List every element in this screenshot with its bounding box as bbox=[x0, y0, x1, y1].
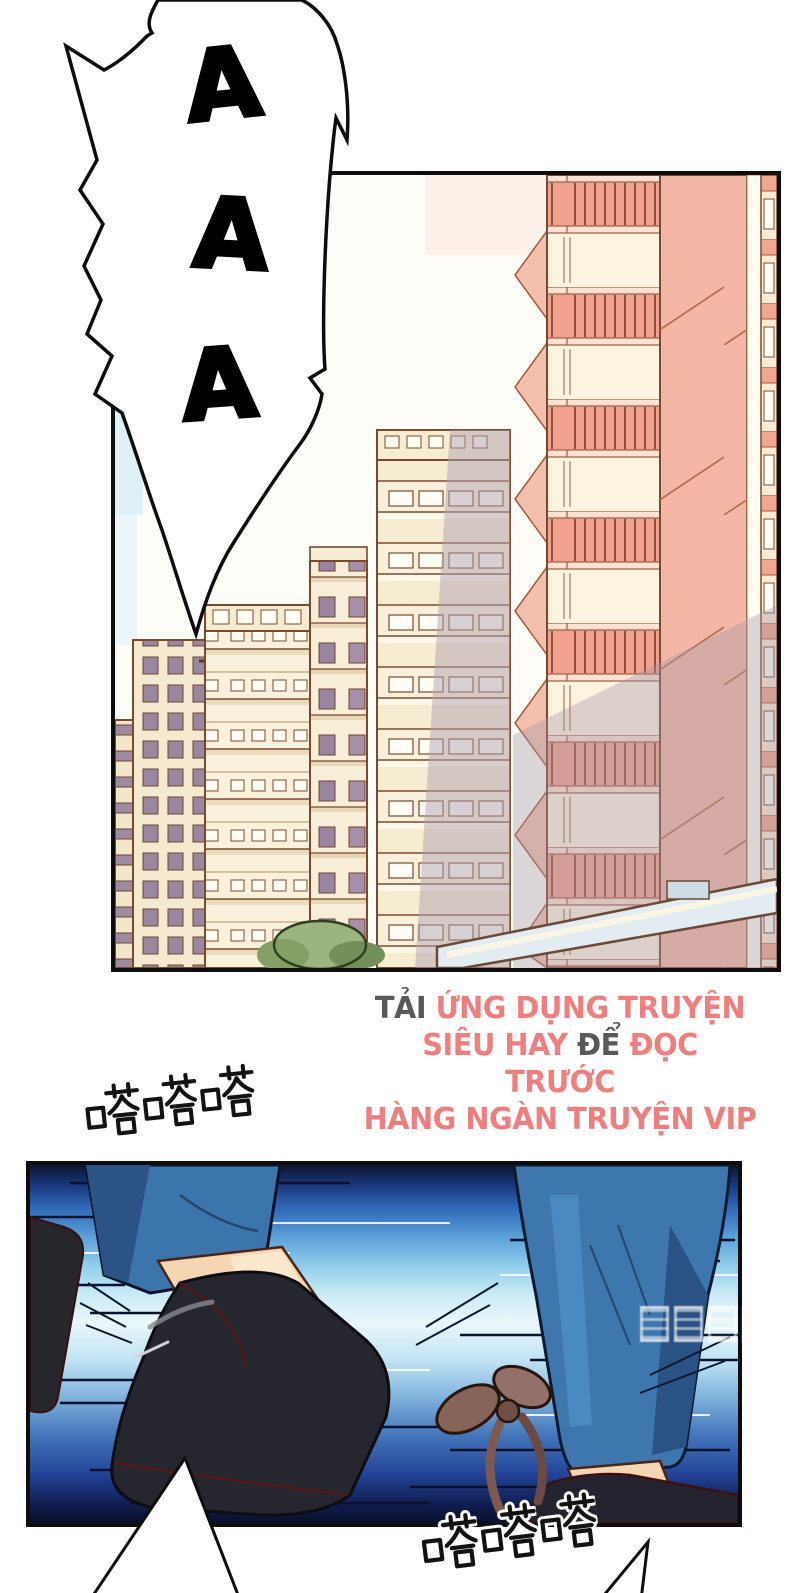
scream-letter: A bbox=[161, 332, 277, 436]
building-balcony-rows bbox=[205, 605, 313, 968]
run-illustration bbox=[30, 1165, 738, 1523]
promo-line-1: TẢI ỨNG DỤNG TRUYỆN bbox=[363, 990, 757, 1027]
tap-glyph bbox=[195, 1059, 259, 1123]
watermark-glyph bbox=[708, 1306, 737, 1342]
tap-glyph bbox=[416, 1508, 483, 1575]
tap-glyph bbox=[475, 1498, 542, 1565]
comic-page: A A A TẢI ỨNG DỤNG TRUYỆN SIÊU HAY ĐỂ ĐỌ… bbox=[0, 0, 793, 1593]
building-window-pairs bbox=[310, 547, 367, 968]
city-illustration bbox=[115, 175, 777, 968]
tap-glyph bbox=[80, 1077, 144, 1141]
tap-glyph bbox=[137, 1068, 201, 1132]
tap-glyph bbox=[534, 1487, 601, 1554]
panel-running-feet bbox=[26, 1161, 742, 1527]
building-wide-balconies bbox=[377, 430, 510, 968]
promo-line-2: SIÊU HAY ĐỂ ĐỌC TRƯỚC bbox=[363, 1027, 757, 1101]
panel-city-buildings bbox=[111, 171, 781, 972]
scream-letter: A bbox=[174, 183, 289, 286]
sfx-tap-top bbox=[79, 1059, 258, 1135]
bubble-tail-bottom-right bbox=[600, 1542, 648, 1593]
promo-line-3: HÀNG NGÀN TRUYỆN VIP bbox=[363, 1101, 757, 1138]
building-salmon-tower bbox=[513, 175, 777, 968]
watermark-glyph bbox=[674, 1306, 703, 1342]
watermark-glyph bbox=[742, 1306, 771, 1342]
app-promo-text: TẢI ỨNG DỤNG TRUYỆN SIÊU HAY ĐỂ ĐỌC TRƯỚ… bbox=[363, 990, 757, 1138]
scream-letter: A bbox=[163, 31, 283, 139]
site-watermark bbox=[640, 1298, 792, 1350]
watermark-glyph bbox=[640, 1306, 669, 1342]
